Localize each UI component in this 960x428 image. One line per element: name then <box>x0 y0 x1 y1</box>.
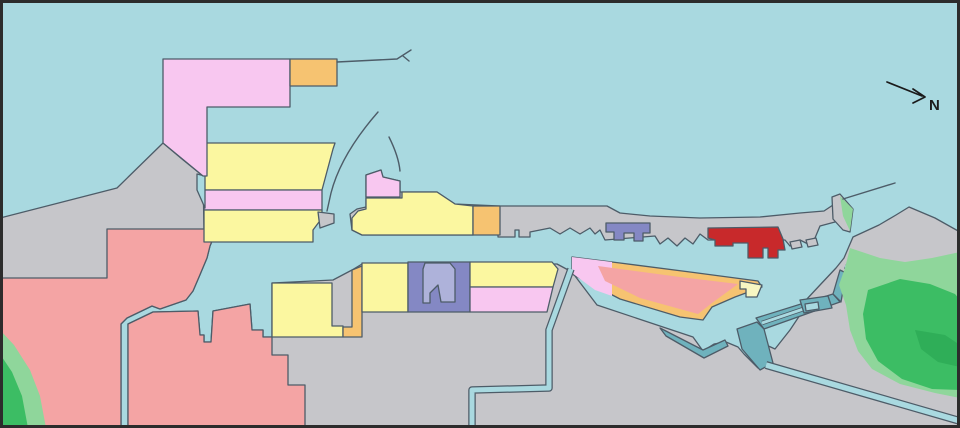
port-map-stage: N <box>0 0 960 428</box>
zone-yellow-band-lower <box>204 210 322 242</box>
zone-yellow-band-upper <box>204 143 335 190</box>
zone-orange-pier <box>473 206 500 235</box>
zone-yellow-row2-east <box>470 262 558 287</box>
zone-pink-band <box>204 190 322 210</box>
north-label: N <box>929 97 940 114</box>
dock-east-2 <box>806 238 818 247</box>
zone-orange-north <box>290 59 337 86</box>
zone-yellow-row2-west <box>362 263 408 312</box>
port-map: N <box>0 0 960 428</box>
zone-yellow-west-basin <box>272 283 343 337</box>
dock-east-1 <box>790 240 802 249</box>
dock-teal-east-basin <box>805 302 819 311</box>
zone-pink-row2 <box>470 287 553 312</box>
